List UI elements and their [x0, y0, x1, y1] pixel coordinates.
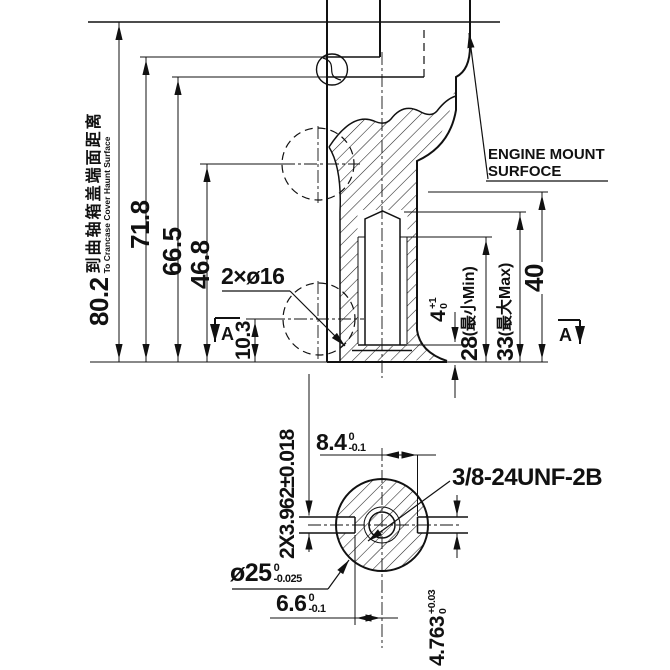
upper-part-outline [88, 0, 500, 362]
drawing-canvas [0, 0, 670, 670]
break-symbol [317, 54, 348, 85]
section-view [232, 374, 473, 648]
technical-drawing-page: 80.2 到曲轴箱盖端面距离 To Crancase Cover Haunt S… [0, 0, 670, 670]
